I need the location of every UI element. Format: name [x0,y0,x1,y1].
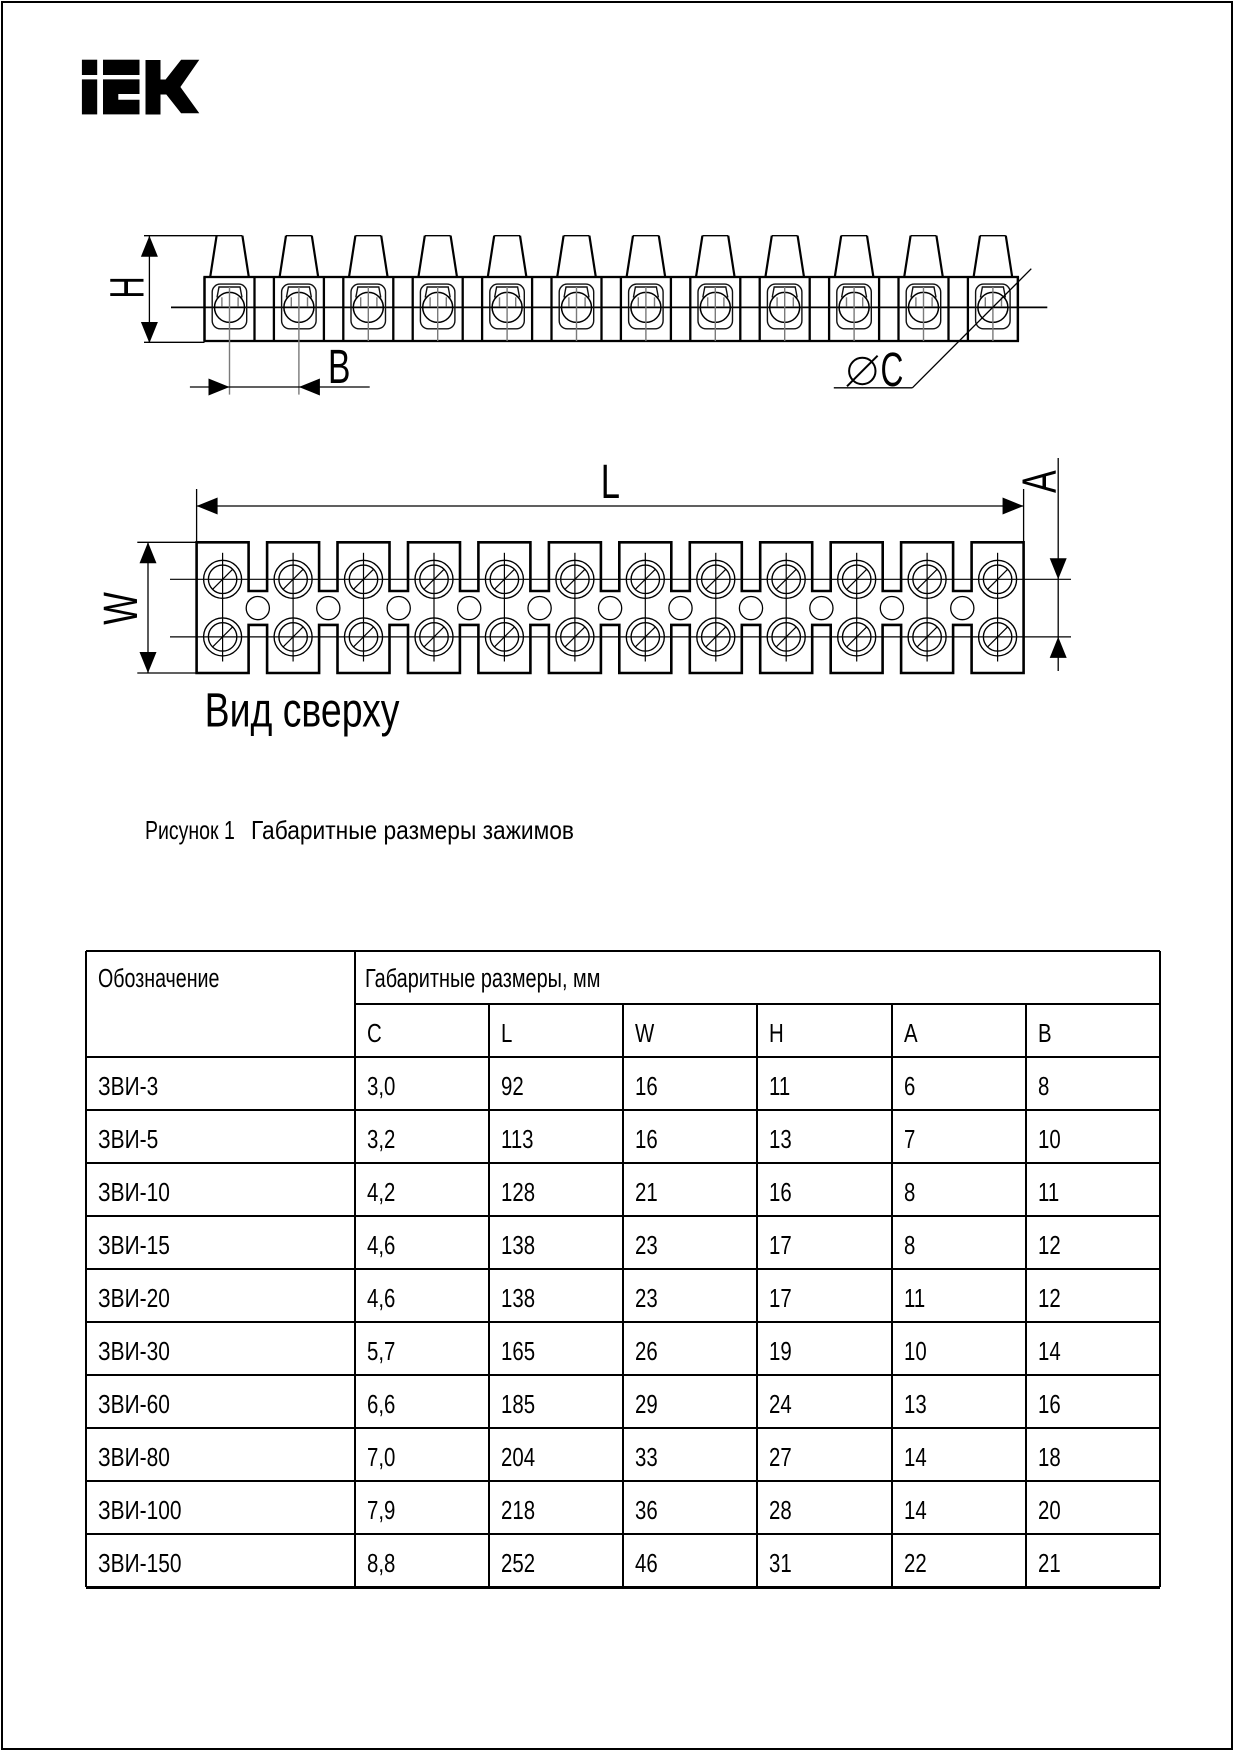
svg-text:B: B [328,339,350,393]
svg-text:C: C [881,342,904,396]
svg-text:A: A [1011,470,1065,493]
svg-text:Вид сверху: Вид сверху [205,684,400,738]
svg-text:H: H [101,276,155,298]
svg-text:L: L [601,454,620,508]
svg-text:W: W [93,592,147,625]
